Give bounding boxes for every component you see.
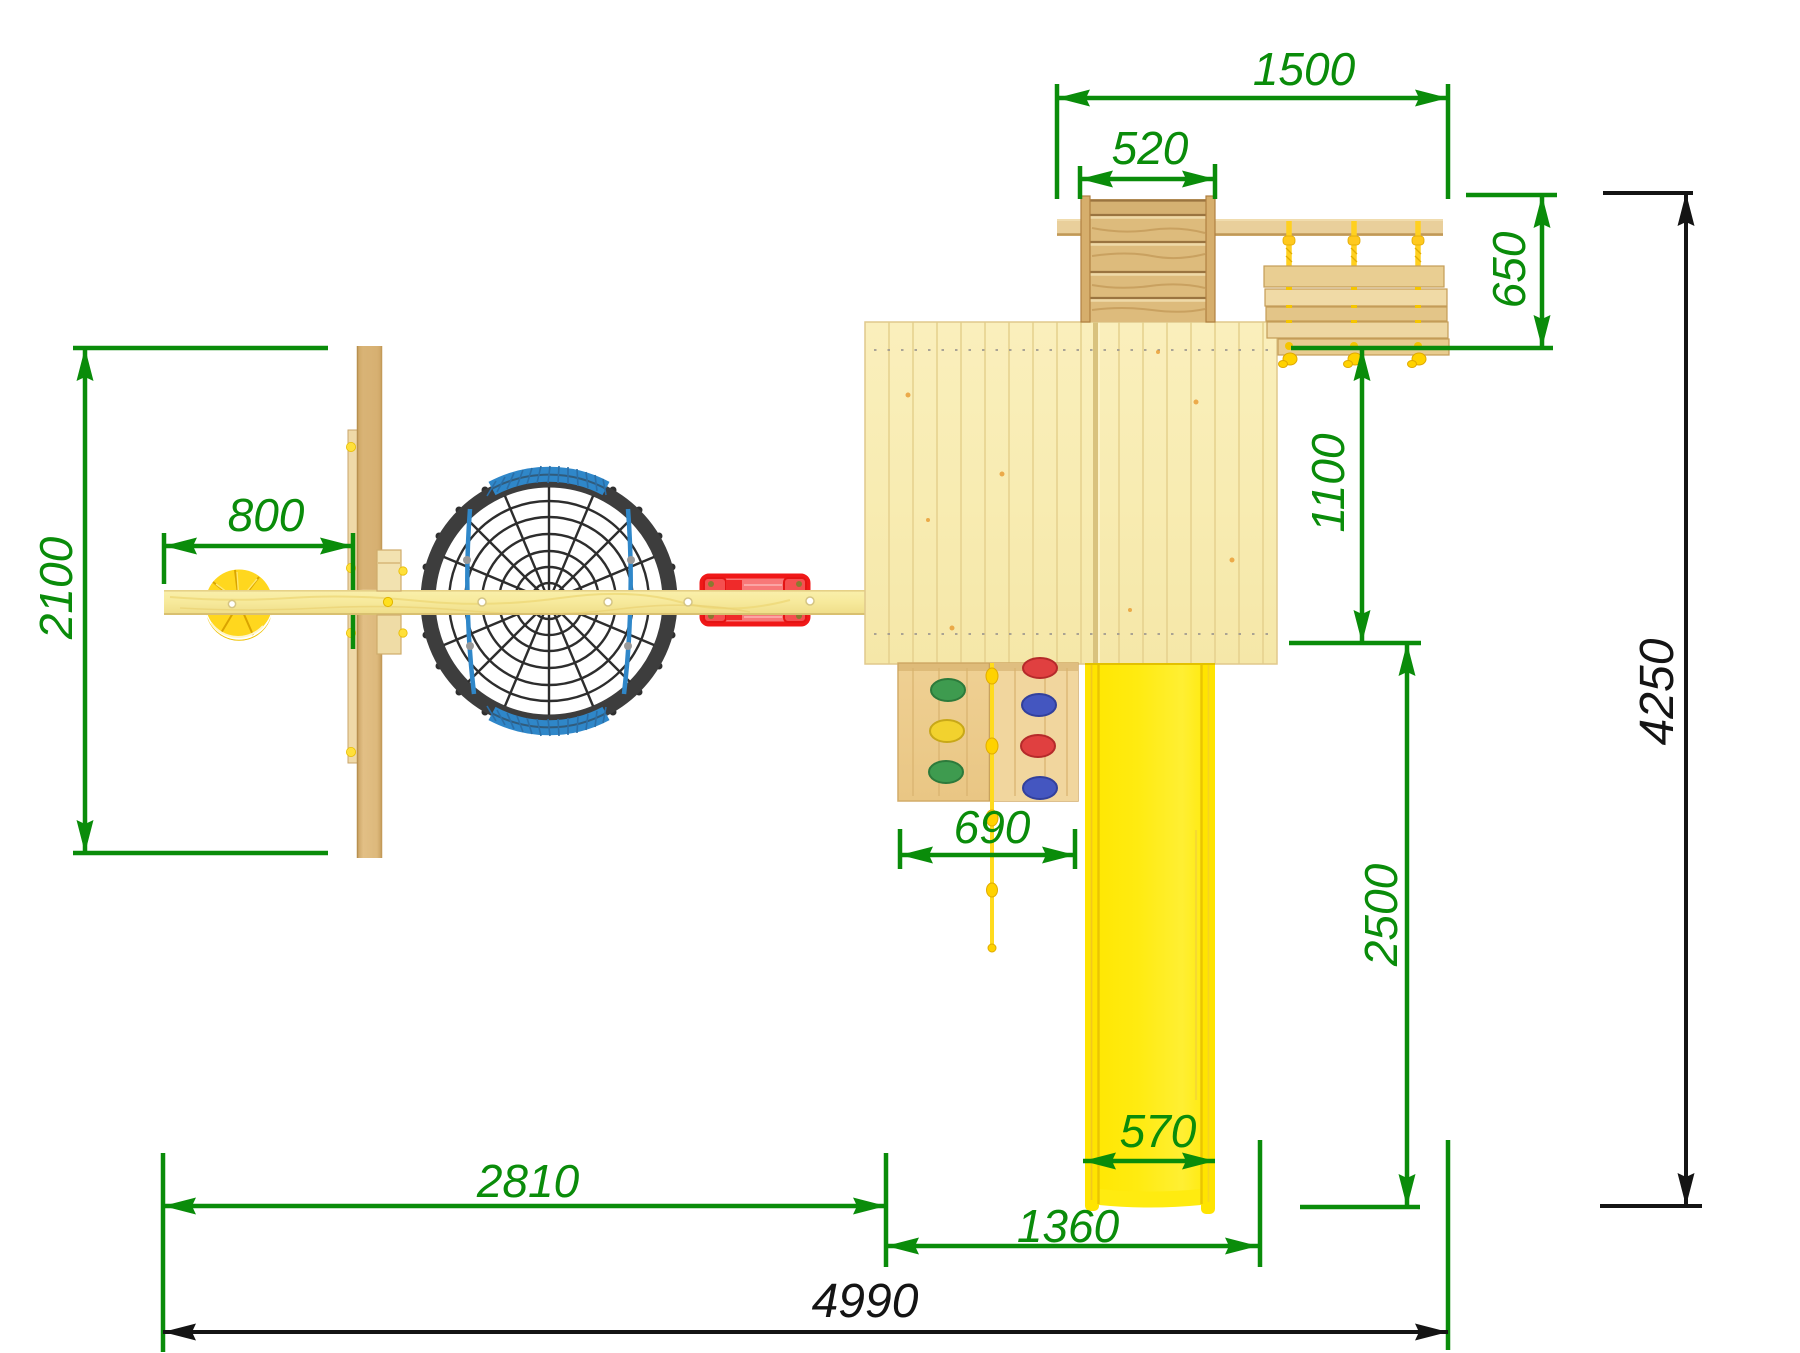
svg-text:690: 690: [954, 801, 1031, 853]
svg-text:520: 520: [1112, 122, 1189, 174]
svg-text:570: 570: [1120, 1105, 1197, 1157]
svg-text:4250: 4250: [1631, 638, 1684, 745]
svg-text:1100: 1100: [1302, 433, 1354, 532]
svg-text:1360: 1360: [1017, 1200, 1120, 1252]
svg-text:800: 800: [228, 489, 305, 541]
svg-text:650: 650: [1483, 231, 1535, 308]
svg-text:2500: 2500: [1355, 863, 1407, 967]
svg-text:2810: 2810: [476, 1155, 580, 1207]
svg-text:4990: 4990: [812, 1275, 919, 1328]
svg-text:2100: 2100: [30, 536, 82, 640]
svg-text:1500: 1500: [1253, 43, 1356, 95]
